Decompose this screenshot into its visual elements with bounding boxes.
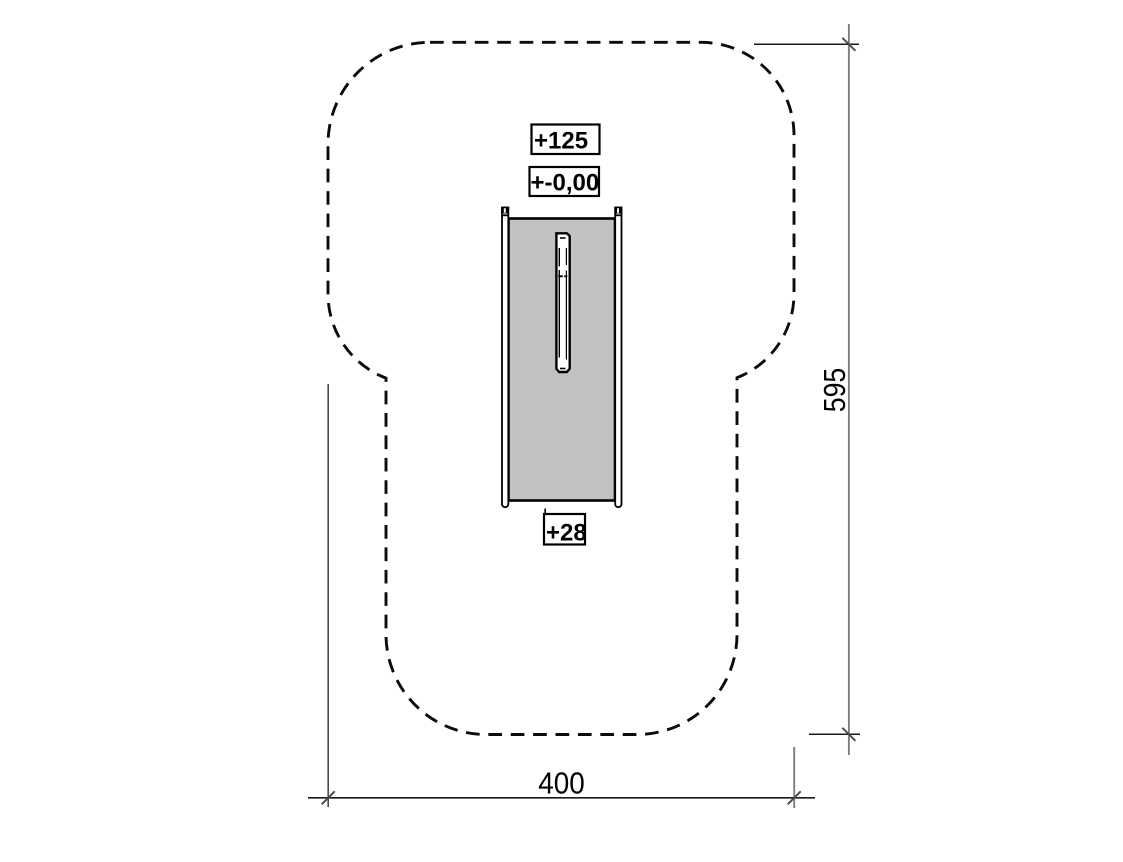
svg-text:595: 595 — [817, 368, 852, 413]
svg-text:400: 400 — [538, 766, 585, 801]
svg-text:+28: +28 — [546, 520, 587, 547]
svg-text:+-0,00: +-0,00 — [531, 170, 600, 197]
svg-text:+125: +125 — [534, 128, 588, 155]
